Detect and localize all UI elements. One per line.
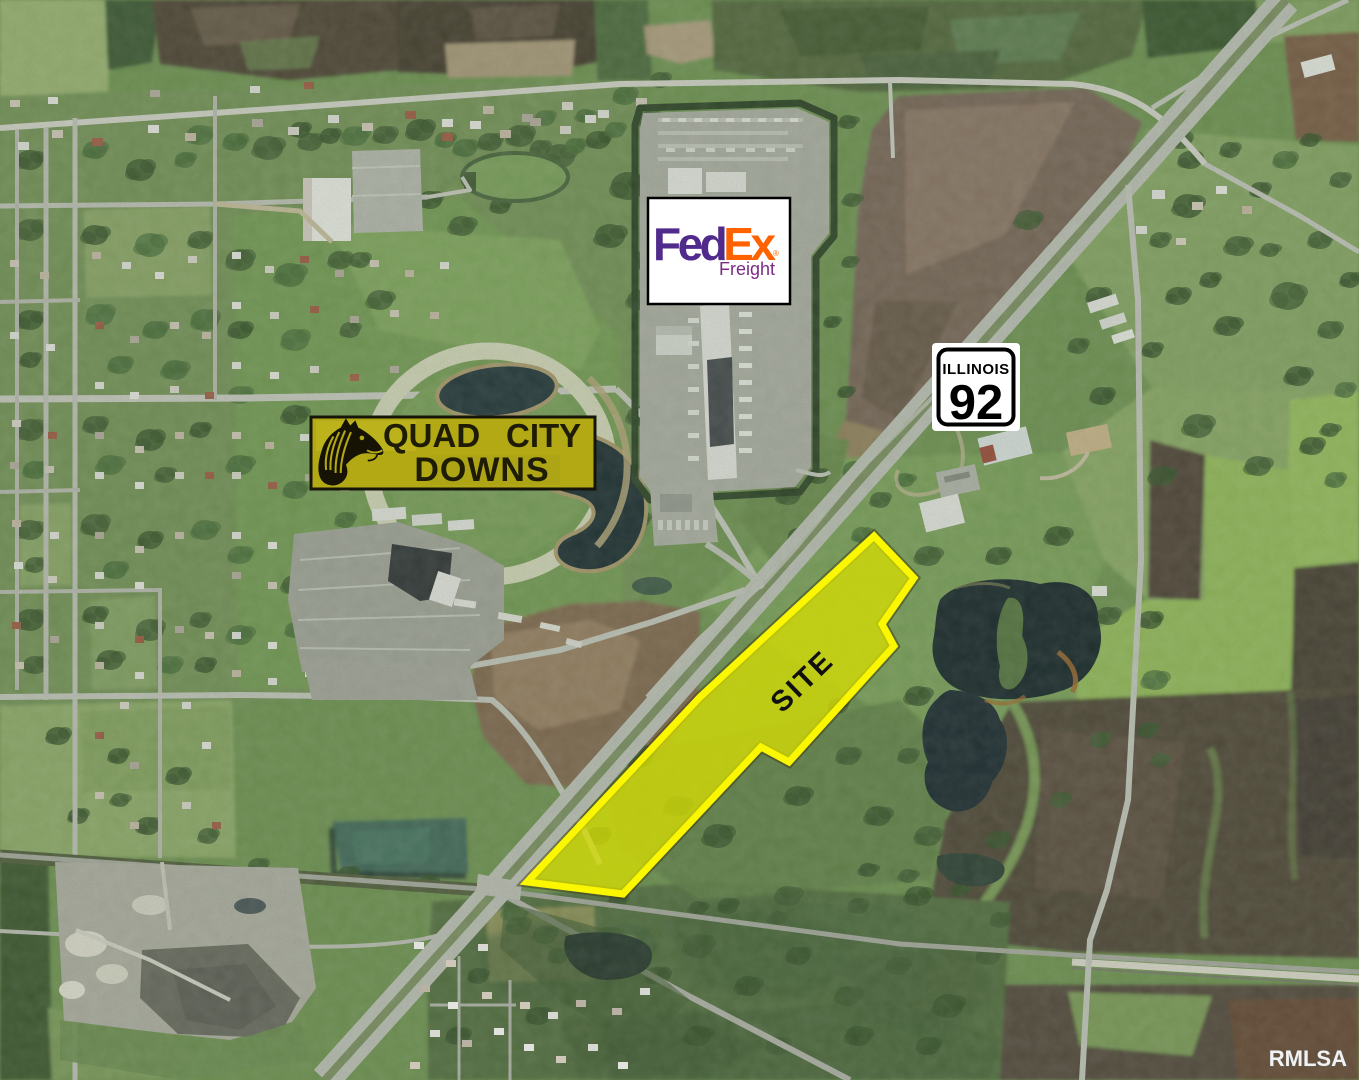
- svg-text:92: 92: [949, 376, 1004, 430]
- svg-text:CITY: CITY: [506, 417, 581, 454]
- svg-text:DOWNS: DOWNS: [414, 451, 549, 489]
- svg-text:Freight: Freight: [719, 259, 775, 279]
- svg-text:®: ®: [773, 249, 779, 258]
- svg-text:QUAD: QUAD: [383, 417, 480, 454]
- svg-text:RMLSA: RMLSA: [1269, 1046, 1347, 1071]
